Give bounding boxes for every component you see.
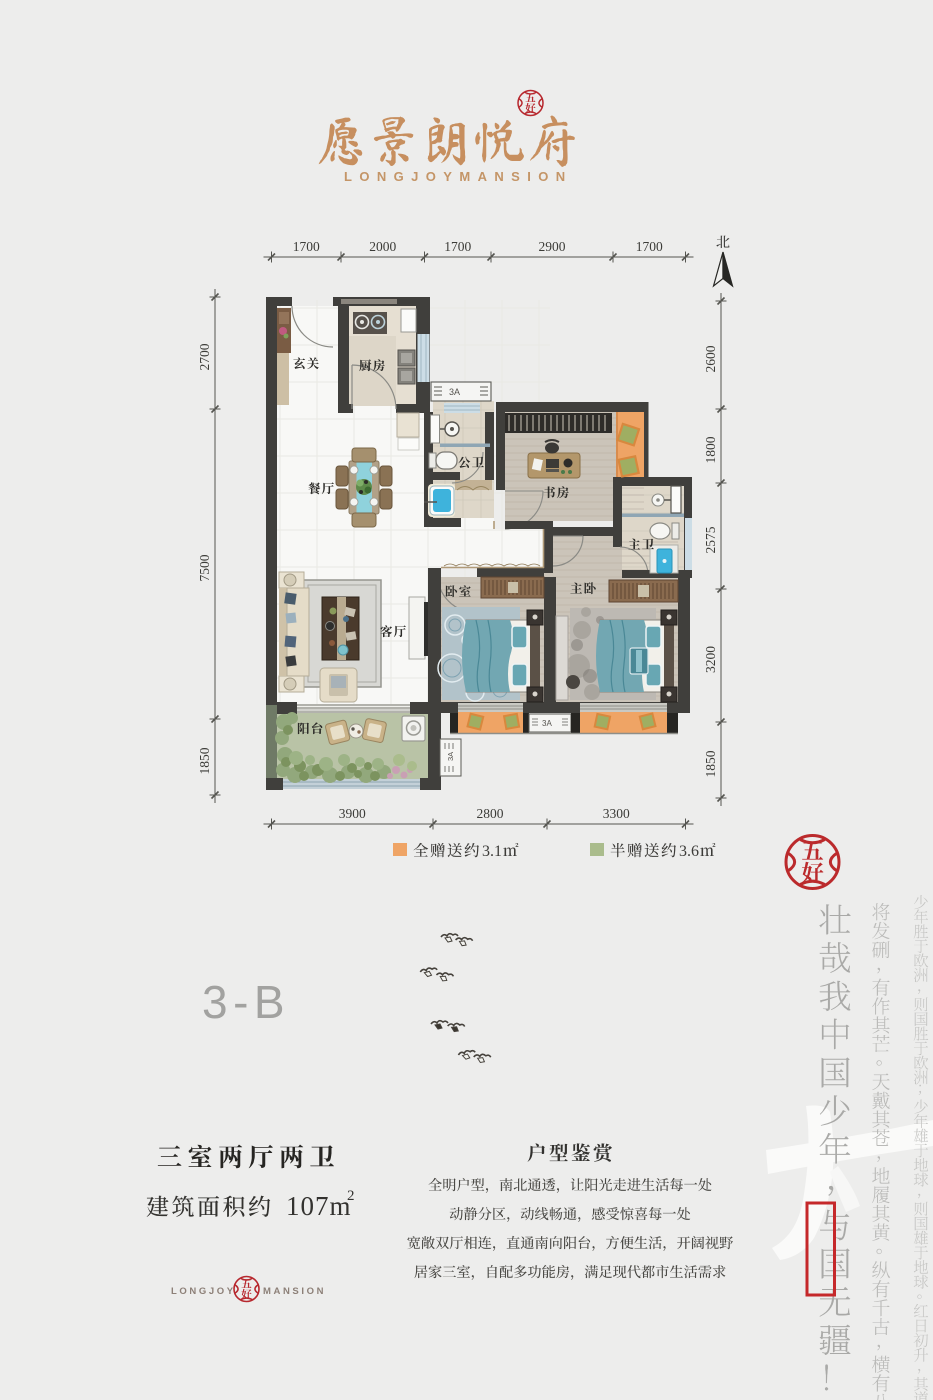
- svg-text:LONGJOY: LONGJOY: [171, 1286, 236, 1297]
- svg-text:LONGJOYMANSION: LONGJOYMANSION: [344, 169, 573, 184]
- svg-text:1700: 1700: [293, 239, 320, 254]
- svg-text:2: 2: [347, 1188, 355, 1204]
- svg-text:3A: 3A: [449, 387, 460, 397]
- svg-text:3A: 3A: [542, 719, 552, 728]
- svg-text:1850: 1850: [703, 750, 718, 777]
- svg-text:2600: 2600: [703, 345, 718, 372]
- svg-text:3900: 3900: [339, 806, 366, 821]
- svg-text:2900: 2900: [539, 239, 566, 254]
- svg-text:1700: 1700: [636, 239, 663, 254]
- svg-text:3A: 3A: [446, 752, 455, 761]
- svg-text:3.1: 3.1: [482, 843, 502, 860]
- svg-text:2700: 2700: [197, 343, 212, 370]
- svg-text:1700: 1700: [444, 239, 471, 254]
- svg-text:107m: 107m: [286, 1191, 352, 1221]
- svg-text:2575: 2575: [703, 526, 718, 553]
- svg-text:3300: 3300: [603, 806, 630, 821]
- svg-text:7500: 7500: [197, 554, 212, 581]
- svg-text:MANSION: MANSION: [263, 1286, 326, 1297]
- svg-text:3.6: 3.6: [679, 843, 699, 860]
- svg-text:2800: 2800: [477, 806, 504, 821]
- svg-text:2000: 2000: [369, 239, 396, 254]
- svg-text:3-B: 3-B: [202, 976, 290, 1028]
- svg-text:3200: 3200: [703, 646, 718, 673]
- svg-text:1800: 1800: [703, 436, 718, 463]
- svg-text:1850: 1850: [197, 747, 212, 774]
